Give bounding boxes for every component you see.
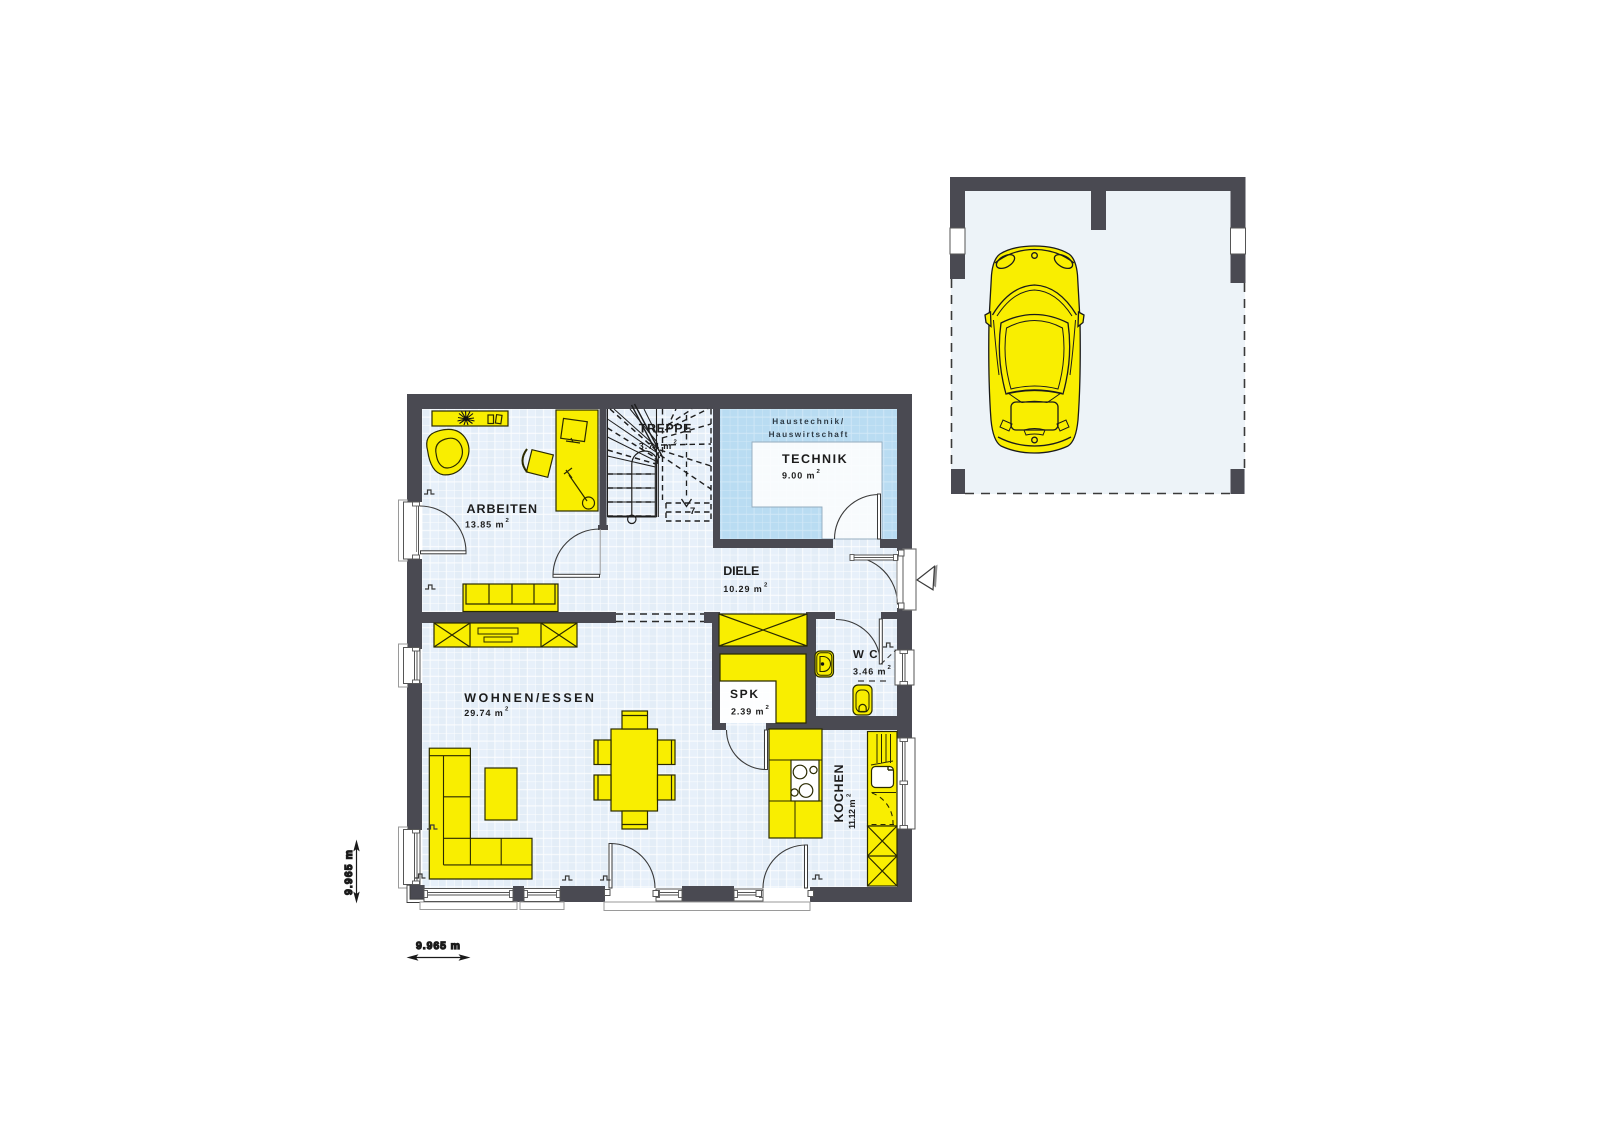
svg-text:9.965 m: 9.965 m xyxy=(416,940,460,952)
svg-text:3.74 m: 3.74 m xyxy=(639,441,673,451)
svg-text:13.85 m: 13.85 m xyxy=(465,520,505,530)
svg-text:Haustechnik/: Haustechnik/ xyxy=(772,417,844,426)
svg-text:9.965 m: 9.965 m xyxy=(343,850,355,895)
svg-text:9.00 m: 9.00 m xyxy=(782,471,816,481)
svg-text:W C: W C xyxy=(853,649,878,661)
svg-text:WOHNEN/ESSEN: WOHNEN/ESSEN xyxy=(464,691,597,705)
svg-text:11.12 m: 11.12 m xyxy=(847,798,857,829)
svg-text:ARBEITEN: ARBEITEN xyxy=(467,502,541,516)
svg-text:DIELE: DIELE xyxy=(723,564,762,578)
svg-text:TREPPE: TREPPE xyxy=(639,422,695,436)
svg-text:29.74 m: 29.74 m xyxy=(464,708,504,718)
svg-text:Hauswirtschaft: Hauswirtschaft xyxy=(769,430,849,439)
svg-text:3.46 m: 3.46 m xyxy=(853,667,887,677)
svg-text:SPK: SPK xyxy=(730,687,758,701)
svg-text:TECHNIK: TECHNIK xyxy=(782,452,850,466)
svg-text:2.39 m: 2.39 m xyxy=(731,707,765,717)
svg-text:7: 7 xyxy=(690,506,695,517)
svg-text:10.29 m: 10.29 m xyxy=(723,584,763,594)
svg-text:KOCHEN: KOCHEN xyxy=(832,762,846,823)
